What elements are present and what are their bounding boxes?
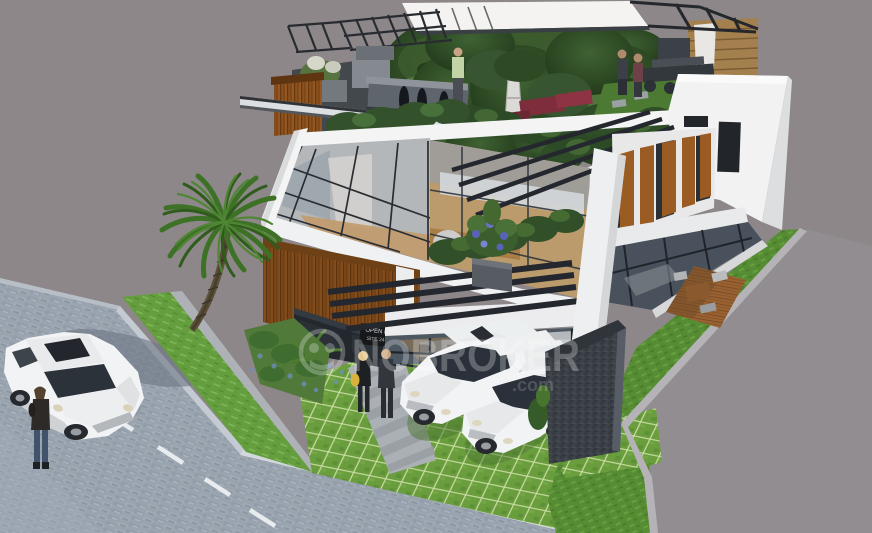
svg-text:NOBROKER: NOBROKER: [352, 330, 580, 381]
svg-text:.com: .com: [512, 375, 554, 395]
